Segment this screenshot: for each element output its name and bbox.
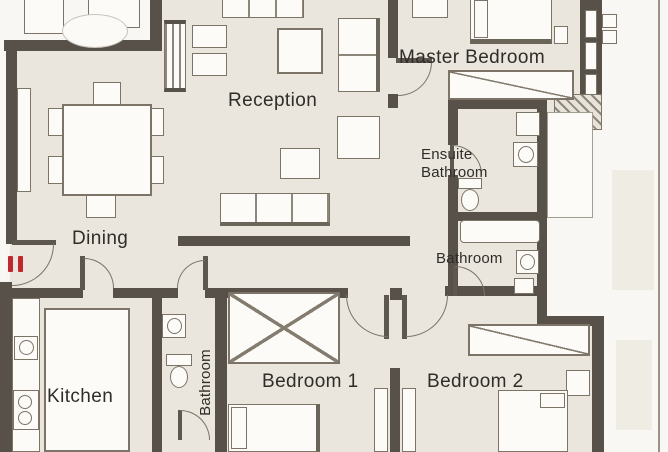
wall [10, 288, 83, 298]
room-label-bedroom-2: Bedroom 2 [427, 371, 524, 393]
ground-patch [612, 170, 654, 290]
room-label-kitchen: Kitchen [47, 386, 113, 408]
room-label-ensuite-line2: Bathroom [421, 164, 488, 181]
wall [390, 368, 400, 452]
nightstand [566, 370, 590, 396]
wardrobe [448, 70, 574, 100]
sofa [338, 18, 380, 92]
bathtub [460, 220, 540, 243]
burner [18, 395, 32, 409]
wall [6, 48, 17, 244]
ac-unit [602, 30, 617, 44]
wall [152, 298, 162, 452]
plot-boundary-line [658, 0, 660, 452]
room-label-reception: Reception [228, 90, 317, 112]
wall [113, 288, 178, 298]
nightstand [554, 26, 568, 44]
toilet-bowl [170, 366, 188, 388]
wardrobe [468, 324, 590, 356]
sink-bowl [19, 340, 34, 355]
wardrobe [228, 292, 340, 364]
pillow [231, 407, 247, 449]
wall [0, 282, 12, 452]
side-table [280, 148, 320, 179]
sink-bowl [167, 318, 182, 334]
dresser [412, 0, 448, 18]
wall [448, 100, 458, 145]
wall-niche [585, 10, 597, 38]
ac-unit [602, 14, 617, 28]
shrub-icon [62, 14, 128, 48]
burner [18, 411, 32, 425]
dining-chair [93, 82, 121, 106]
room-label-master-bedroom: Master Bedroom [399, 47, 545, 69]
wall [448, 100, 545, 109]
wall-niche [585, 42, 597, 70]
ground-patch [616, 340, 652, 430]
pillow [540, 393, 565, 408]
dining-table [62, 104, 152, 196]
toilet-tank [166, 354, 192, 366]
tall-cabinet [374, 388, 388, 452]
duct-shaft [547, 112, 593, 218]
toilet-bowl [461, 189, 479, 211]
wall [388, 94, 398, 108]
armchair [337, 116, 380, 159]
armchair [192, 53, 227, 76]
floorplan-canvas: Reception Master Bedroom Ensuite Bathroo… [0, 0, 668, 452]
bidet [514, 278, 534, 294]
entrance-marker [8, 256, 13, 272]
sofa [220, 193, 330, 226]
tall-cabinet [402, 388, 416, 452]
planter [24, 0, 64, 34]
room-label-bathroom-small: Bathroom [197, 335, 214, 430]
room-label-bathroom-main: Bathroom [436, 250, 503, 267]
coffee-table [277, 28, 323, 74]
sink-bowl [518, 146, 534, 163]
shower [516, 112, 540, 136]
sink-bowl [520, 254, 535, 270]
sofa [222, 0, 304, 18]
wall [388, 0, 398, 58]
room-label-bedroom-1: Bedroom 1 [262, 371, 359, 393]
wall [215, 288, 227, 452]
dining-chair [86, 194, 116, 218]
pillow [474, 0, 488, 38]
wall [178, 236, 410, 246]
kitchen-island [44, 308, 130, 452]
wall [592, 316, 604, 452]
room-label-dining: Dining [72, 228, 128, 250]
room-label-ensuite-line1: Ensuite [421, 146, 472, 163]
armchair [192, 25, 227, 48]
wall [390, 288, 402, 300]
entrance-marker [18, 256, 23, 272]
tv-unit [164, 20, 186, 92]
sideboard [17, 88, 31, 192]
